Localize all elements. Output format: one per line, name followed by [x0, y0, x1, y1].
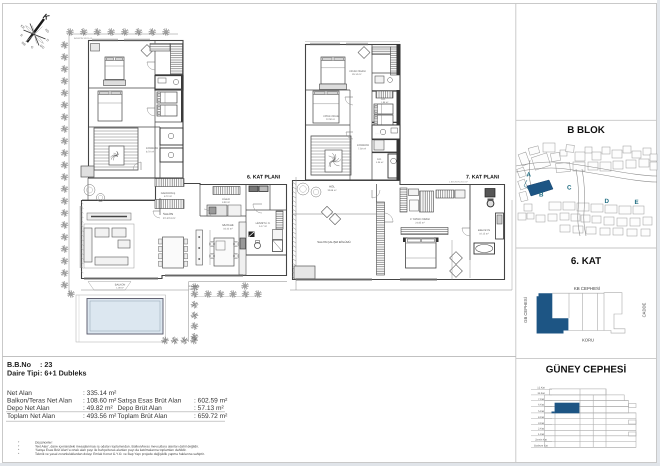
svg-text:1.BALKON 25.6 m²: 1.BALKON 25.6 m²	[449, 181, 468, 184]
svg-text:16.42 m²: 16.42 m²	[223, 228, 233, 231]
svg-text:KORU: KORU	[582, 338, 594, 343]
svg-text:7.59 m²: 7.59 m²	[358, 148, 366, 151]
svg-text:HOL: HOL	[329, 185, 335, 189]
svg-text:: 6+1 Dubleks: : 6+1 Dubleks	[40, 368, 87, 377]
svg-text:4.Kat: 4.Kat	[538, 416, 544, 419]
svg-text:Depo Net Alan: Depo Net Alan	[7, 405, 50, 412]
svg-text:Satışa Esas Brüt Alan: Satışa Esas Brüt Alan	[118, 397, 182, 404]
svg-text:3.Kat: 3.Kat	[538, 422, 544, 425]
svg-text:KB CEPHESİ: KB CEPHESİ	[574, 286, 600, 291]
svg-text:D: D	[605, 198, 610, 205]
svg-text:8.70 m²: 8.70 m²	[164, 195, 172, 198]
svg-text:4.08 m²: 4.08 m²	[376, 161, 384, 164]
svg-text:24.85 m²: 24.85 m²	[415, 222, 425, 225]
svg-text:: 57.13 m²: : 57.13 m²	[194, 405, 224, 412]
svg-text:6. KAT PLANI: 6. KAT PLANI	[247, 175, 281, 181]
svg-text:B BLOK: B BLOK	[567, 125, 605, 136]
svg-text:GÜNEY CEPHESİ: GÜNEY CEPHESİ	[546, 364, 627, 376]
svg-text:1.Kat: 1.Kat	[538, 433, 544, 436]
svg-text:12.Kat: 12.Kat	[537, 387, 545, 390]
svg-text:BANYO: BANYO	[375, 133, 383, 136]
svg-text:33.66 m²: 33.66 m²	[327, 189, 336, 192]
svg-text:C: C	[567, 185, 572, 192]
svg-text:Toplam Net Alan: Toplam Net Alan	[7, 413, 55, 420]
svg-text:1.09 m²: 1.09 m²	[116, 287, 124, 290]
svg-text:7. KAT PLANI: 7. KAT PLANI	[466, 175, 500, 181]
svg-text:BALKON 34.01 m²: BALKON 34.01 m²	[74, 37, 92, 40]
svg-text:26.14 m²: 26.14 m²	[352, 73, 362, 76]
svg-text:: 493.56 m²: : 493.56 m²	[83, 413, 117, 420]
svg-text:12.50 m²: 12.50 m²	[326, 118, 335, 121]
svg-text:MUTFAK: MUTFAK	[222, 223, 233, 227]
svg-text:BALKON: BALKON	[115, 284, 126, 287]
svg-text:8.70 m²: 8.70 m²	[146, 151, 154, 154]
svg-text:G.D.: G.D.	[377, 158, 382, 161]
svg-text:6. KAT: 6. KAT	[571, 256, 601, 267]
svg-text:A: A	[527, 172, 532, 179]
svg-text:: 49.82 m²: : 49.82 m²	[83, 405, 113, 412]
svg-text:3.99 m²: 3.99 m²	[222, 201, 230, 204]
svg-text:11.Kat: 11.Kat	[537, 392, 545, 395]
svg-text:87.2/73 m²: 87.2/73 m²	[163, 217, 176, 220]
svg-text:7.Kat: 7.Kat	[538, 398, 544, 401]
svg-text:Toplam Brüt Alan: Toplam Brüt Alan	[118, 413, 168, 420]
svg-text:: 335.14 m²: : 335.14 m²	[83, 390, 117, 397]
svg-text:1.98 m²: 1.98 m²	[381, 101, 389, 104]
svg-text:YATAK ODASI: YATAK ODASI	[323, 115, 339, 118]
svg-text:2.Kat: 2.Kat	[538, 428, 544, 431]
svg-text:Balkon/Teras Net Alan: Balkon/Teras Net Alan	[7, 397, 72, 404]
svg-text:CADDE: CADDE	[642, 302, 647, 317]
svg-text:B: B	[539, 192, 544, 199]
svg-text:GB CEPHESİ: GB CEPHESİ	[523, 297, 528, 323]
svg-text:6.Kat: 6.Kat	[538, 404, 544, 407]
svg-text:SALON: SALON	[163, 212, 173, 216]
svg-text:: 659.72 m²: : 659.72 m²	[194, 413, 228, 420]
svg-text:: 108.60 m²: : 108.60 m²	[83, 397, 117, 404]
svg-text:Depo Brüt Alan: Depo Brüt Alan	[118, 405, 163, 412]
svg-text:10.15 m²: 10.15 m²	[479, 233, 489, 236]
svg-text:Net Alan: Net Alan	[7, 390, 32, 397]
svg-text:Daire Tipi: Daire Tipi	[7, 368, 40, 377]
svg-text:: 602.59 m²: : 602.59 m²	[194, 397, 228, 404]
svg-text:SALON ÇALIŞM BÖLÜMÜ: SALON ÇALIŞM BÖLÜMÜ	[317, 240, 350, 244]
svg-text:Teknik ve yasal zorunluluklard: Teknik ve yasal zorunluluklardan dolayı …	[35, 452, 205, 456]
svg-text:5.Kat: 5.Kat	[538, 410, 544, 413]
svg-text:E: E	[635, 199, 639, 206]
svg-text:5.17 m²: 5.17 m²	[259, 225, 267, 228]
svg-text:G.D.: G.D.	[381, 98, 386, 101]
